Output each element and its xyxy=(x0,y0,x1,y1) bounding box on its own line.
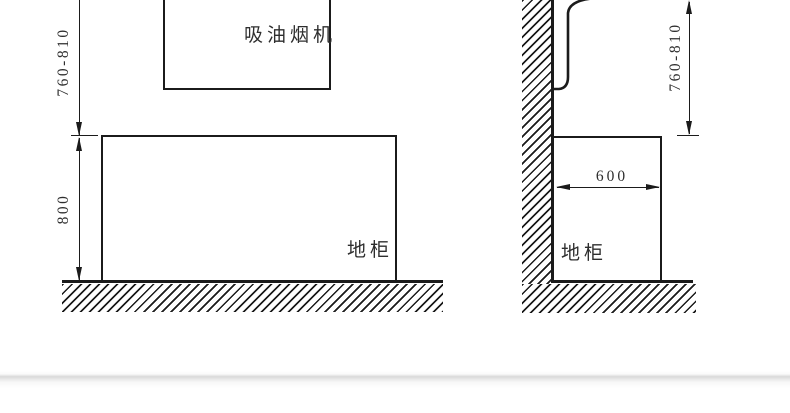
image-divider-shadow xyxy=(0,371,790,388)
side-floor-hatch xyxy=(522,284,696,314)
dim-arrow-right-icon xyxy=(646,184,660,190)
side-dim-line-hood-to-counter xyxy=(689,2,690,134)
front-cabinet-label: 地柜 xyxy=(332,240,408,262)
front-dim-line-hood-to-counter xyxy=(79,0,80,135)
front-floor-line xyxy=(62,280,443,283)
front-dim-label-cabinet-height: 800 xyxy=(54,159,74,259)
side-floor-line xyxy=(554,280,693,283)
side-cabinet-label: 地柜 xyxy=(561,243,605,265)
front-dim-label-hood-to-counter: 760-810 xyxy=(54,12,74,112)
front-floor-hatch xyxy=(62,284,443,313)
installation-diagram: 760-810 800 吸油烟机 地柜 地柜 600 760-810 xyxy=(0,0,790,413)
dim-arrow-up-icon xyxy=(686,0,692,14)
front-hood-label: 吸油烟机 xyxy=(244,25,332,47)
dim-arrow-down-icon xyxy=(686,121,692,135)
dim-arrow-left-icon xyxy=(556,184,570,190)
dim-arrow-up-icon xyxy=(76,137,82,151)
side-dim-label-hood-to-counter: 760-810 xyxy=(666,7,686,107)
side-dim-label-cabinet-depth: 600 xyxy=(587,167,637,185)
side-hood-profile xyxy=(552,0,598,95)
side-dim-line-cabinet-depth xyxy=(557,187,659,188)
front-dim-line-cabinet-height xyxy=(79,138,80,280)
dim-arrow-down-icon xyxy=(76,122,82,136)
dim-arrow-down-icon xyxy=(76,267,82,281)
side-extension-tick xyxy=(677,135,699,136)
side-wall-hatch xyxy=(522,0,551,284)
